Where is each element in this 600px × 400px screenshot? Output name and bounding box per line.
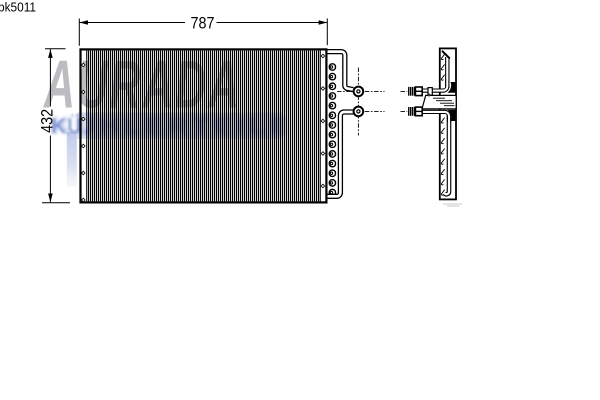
svg-text:787: 787	[191, 15, 215, 33]
svg-text:bk5011: bk5011	[0, 0, 36, 15]
svg-text:432: 432	[39, 109, 57, 133]
